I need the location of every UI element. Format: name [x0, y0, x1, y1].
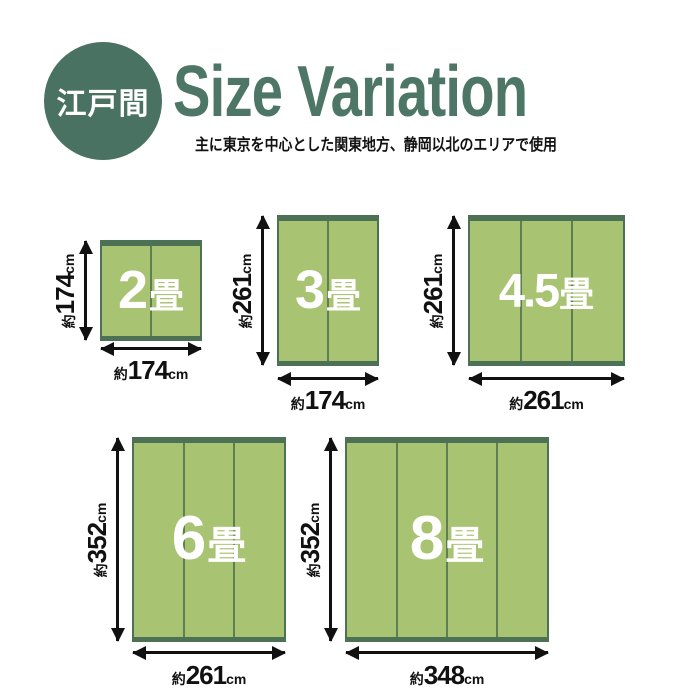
mat-figure-6jo: 約352cm 6畳 約261cm: [132, 437, 286, 642]
width-dimension-label: 約261cm: [172, 662, 247, 688]
mat-rect: 6畳: [132, 437, 286, 642]
height-dimension-label: 約261cm: [229, 253, 255, 328]
height-dimension-label: 約261cm: [420, 253, 446, 328]
page-subtitle: 主に東京を中心とした関東地方、静岡以北のエリアで使用: [195, 131, 557, 155]
height-arrow: [84, 241, 87, 340]
mat-rect: 8畳: [345, 437, 549, 642]
badge-label: 江戸間: [57, 79, 150, 123]
width-arrow: [133, 651, 285, 654]
width-dimension-label: 約261cm: [509, 387, 584, 413]
mat-figure-8jo: 約352cm 8畳 約348cm: [345, 437, 549, 642]
mat-figure-4-5jo: 約261cm 4.5畳 約261cm: [468, 215, 625, 366]
height-arrow: [329, 438, 332, 641]
mat-rect: 4.5畳: [468, 215, 625, 366]
mat-size-label: 2畳: [102, 263, 200, 317]
height-arrow: [261, 216, 264, 365]
edoma-circle-badge: 江戸間: [44, 42, 162, 160]
width-arrow: [346, 651, 548, 654]
page-title: Size Variation: [173, 56, 527, 128]
height-dimension-label: 約174cm: [52, 253, 78, 328]
mat-size-label: 3畳: [279, 263, 377, 317]
mat-size-label: 8畳: [347, 508, 547, 570]
width-dimension-label: 約174cm: [291, 387, 366, 413]
mat-size-label: 6畳: [134, 508, 284, 570]
width-dimension-label: 約174cm: [114, 357, 189, 383]
width-arrow: [278, 377, 378, 380]
height-dimension-label: 約352cm: [297, 502, 323, 577]
mat-figure-3jo: 約261cm 3畳 約174cm: [277, 215, 379, 366]
size-variation-diagram: 江戸間 Size Variation 主に東京を中心とした関東地方、静岡以北のエ…: [0, 0, 700, 700]
width-arrow: [101, 347, 201, 350]
height-arrow: [452, 216, 455, 365]
width-dimension-label: 約348cm: [410, 662, 485, 688]
mat-rect: 2畳: [100, 240, 202, 341]
mat-rect: 3畳: [277, 215, 379, 366]
height-dimension-label: 約352cm: [84, 502, 110, 577]
height-arrow: [116, 438, 119, 641]
mat-figure-2jo: 約174cm 2畳 約174cm: [100, 240, 202, 341]
mat-size-label: 4.5畳: [470, 267, 623, 314]
width-arrow: [469, 377, 624, 380]
